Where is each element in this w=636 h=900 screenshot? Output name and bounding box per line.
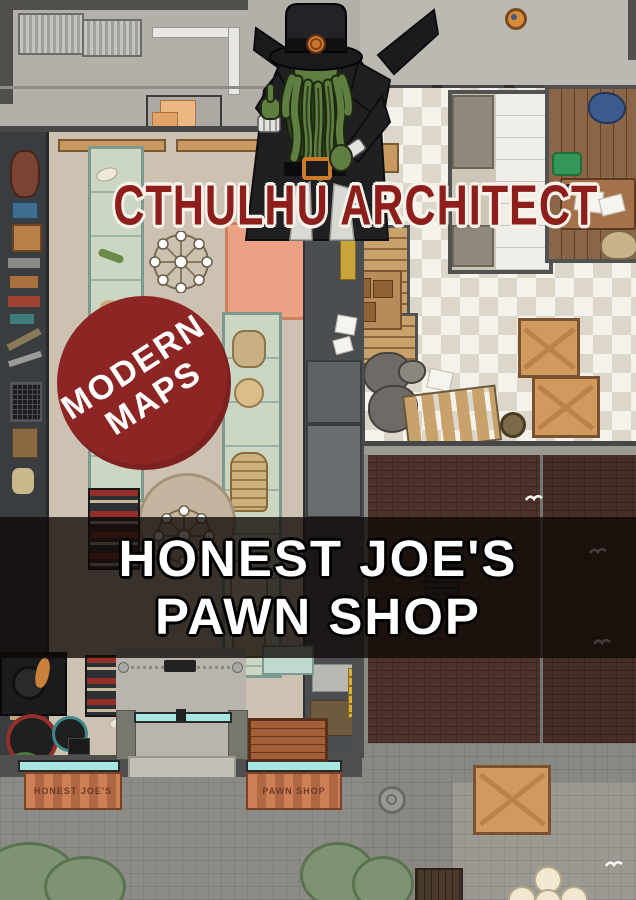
alley-inner-wall xyxy=(152,27,240,38)
gate-latch xyxy=(164,660,196,672)
loose-paper xyxy=(335,314,358,335)
door-handle xyxy=(176,709,186,721)
hat-pin xyxy=(307,35,325,53)
corrugated-panel xyxy=(18,13,84,55)
alley-left-wall xyxy=(0,8,13,104)
street-lamp xyxy=(378,786,406,814)
shelf-item-speaker xyxy=(10,382,42,422)
shelf-item-tools xyxy=(8,258,40,268)
gray-cabinet xyxy=(306,360,362,424)
blue-bag xyxy=(588,92,626,124)
shelf-item-jug xyxy=(12,468,34,494)
entry-pillar xyxy=(116,710,136,760)
wooden-crate xyxy=(532,376,600,438)
pointing-finger xyxy=(267,84,274,102)
dark-planter-crate xyxy=(415,868,463,900)
wooden-crate xyxy=(473,765,551,835)
cthulhu-architect-logo: CTHULHU ARCHITECT xyxy=(113,172,527,238)
shelf-item-coil xyxy=(10,276,38,288)
title-banner: HONEST JOE'S PAWN SHOP xyxy=(0,517,636,658)
awning-right: PAWN SHOP xyxy=(246,772,342,810)
awning-left: HONEST JOE'S xyxy=(24,772,122,810)
shelf-item-amp xyxy=(12,224,42,252)
awning-left-label: HONEST JOE'S xyxy=(34,786,112,796)
modern-maps-badge: MODERN MAPS xyxy=(57,296,231,470)
case-item-sarcophagus xyxy=(230,452,268,512)
camera xyxy=(68,738,90,755)
ceiling-fan xyxy=(148,231,214,293)
alley-top-wall xyxy=(0,0,248,10)
shelf-item-radio xyxy=(12,202,38,219)
wood-deck xyxy=(248,718,328,762)
seagull-icon xyxy=(604,858,624,870)
flower-pot xyxy=(500,412,526,438)
storage-box xyxy=(452,95,494,169)
right-hand xyxy=(330,145,352,171)
shelf-item-red-box xyxy=(8,296,40,307)
fence-post xyxy=(232,662,243,673)
seagull-icon xyxy=(524,492,544,504)
coat-collar-right xyxy=(378,10,438,74)
gray-cabinet xyxy=(306,424,362,518)
office-chair xyxy=(600,230,636,260)
case-item-vase xyxy=(234,378,264,408)
fence-post xyxy=(118,662,129,673)
corrugated-panel xyxy=(82,19,142,57)
awning-right-label: PAWN SHOP xyxy=(262,786,325,796)
title-line-1: HONEST JOE'S xyxy=(119,530,518,587)
badge-text: MODERN MAPS xyxy=(56,308,233,458)
shelf-item-teal-box xyxy=(10,314,34,324)
shelf-item-guitar xyxy=(10,150,40,198)
alley-lamp xyxy=(505,8,527,30)
case-item-bust xyxy=(232,330,266,368)
shelf-item-crate xyxy=(12,428,38,458)
title-line-2: PAWN SHOP xyxy=(155,588,481,645)
wooden-crate xyxy=(518,318,580,378)
alley-right-edge-wall xyxy=(628,0,636,60)
pawn-shop-map-cover: HONEST JOE'S PAWN SHOP xyxy=(0,0,636,900)
shop-window xyxy=(18,760,120,772)
